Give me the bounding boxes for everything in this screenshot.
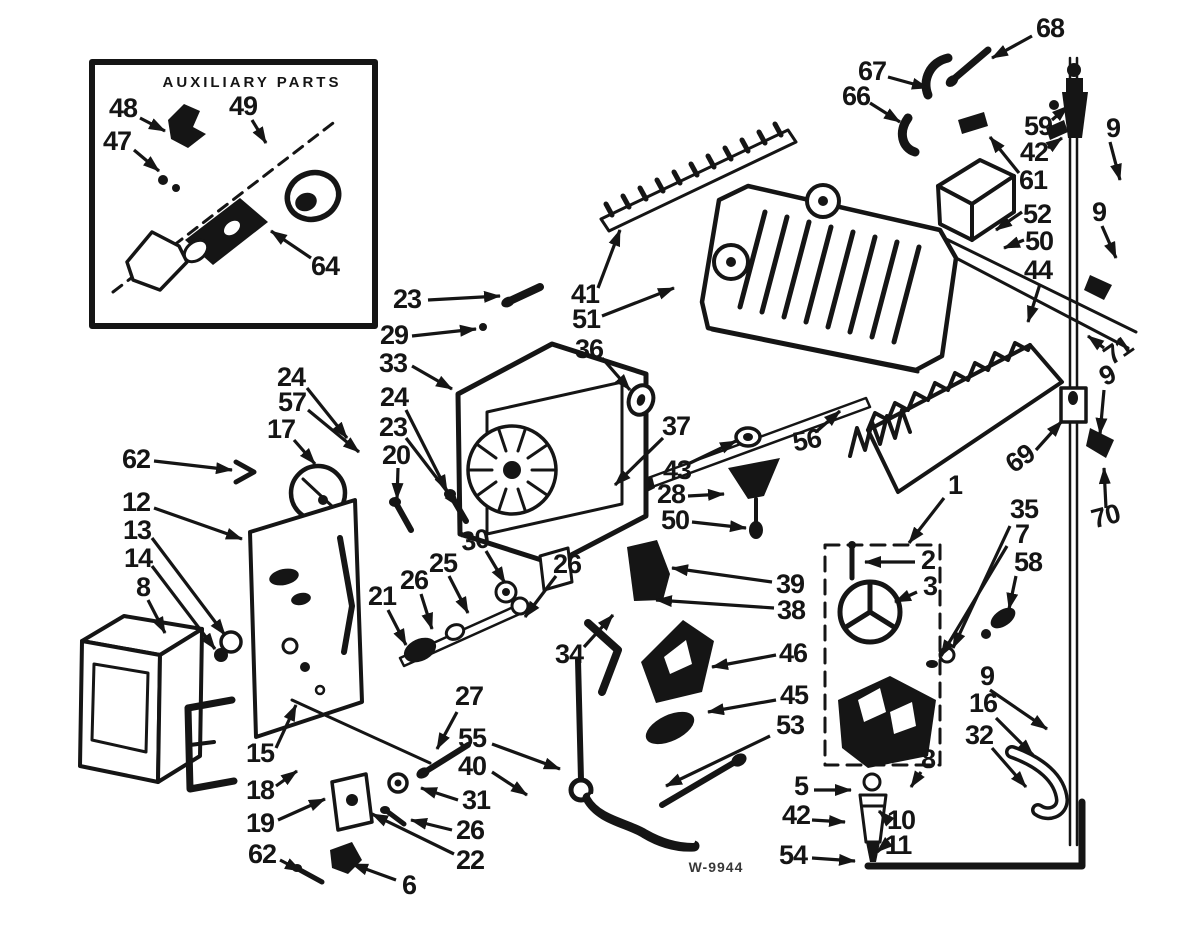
callout-46: 46 bbox=[779, 638, 808, 668]
part-shape bbox=[283, 639, 297, 653]
part-shape bbox=[1068, 391, 1078, 405]
leader-line bbox=[278, 799, 325, 820]
leader-line bbox=[271, 231, 311, 258]
part-shape bbox=[588, 623, 618, 692]
leader-line bbox=[812, 858, 855, 861]
callout-12: 12 bbox=[122, 487, 150, 517]
scanned-manual-page: 4847496423293341513624571724232062121314… bbox=[0, 0, 1200, 944]
callout-37: 37 bbox=[662, 411, 690, 441]
callout-42: 42 bbox=[1020, 137, 1048, 167]
part-shape bbox=[759, 132, 765, 143]
part-shape bbox=[318, 495, 328, 505]
leader-line bbox=[134, 150, 159, 171]
callout-22: 22 bbox=[456, 845, 484, 875]
callout-25: 25 bbox=[429, 548, 458, 578]
leader-line bbox=[406, 410, 447, 491]
callout-32: 32 bbox=[965, 720, 993, 750]
callout-6: 6 bbox=[402, 870, 417, 900]
leader-line bbox=[1009, 576, 1016, 609]
leader-line bbox=[708, 700, 776, 712]
part-shape bbox=[1067, 63, 1081, 77]
part-shape bbox=[300, 870, 322, 882]
callout-16: 16 bbox=[969, 688, 998, 718]
part-shape bbox=[640, 188, 646, 199]
part-shape bbox=[725, 148, 731, 159]
callout-45: 45 bbox=[780, 680, 809, 710]
callout-29: 29 bbox=[380, 320, 409, 350]
leader-line bbox=[308, 410, 359, 452]
leader-line bbox=[140, 118, 165, 131]
leader-line bbox=[276, 771, 297, 786]
callout-42: 42 bbox=[782, 800, 810, 830]
part-shape bbox=[728, 458, 780, 499]
callout-49: 49 bbox=[229, 91, 258, 121]
part-shape bbox=[346, 794, 358, 806]
callout-7: 7 bbox=[1015, 519, 1029, 549]
leader-line bbox=[397, 468, 398, 499]
leader-line bbox=[352, 864, 396, 880]
callout-1: 1 bbox=[948, 470, 963, 500]
leader-line bbox=[598, 230, 620, 288]
part-shape bbox=[657, 180, 663, 191]
leader-line bbox=[437, 712, 457, 749]
leader-line bbox=[1110, 142, 1120, 180]
leader-line bbox=[1036, 421, 1062, 450]
callout-66: 66 bbox=[842, 81, 871, 111]
part-shape bbox=[818, 196, 828, 206]
callout-27: 27 bbox=[455, 681, 483, 711]
leader-line bbox=[602, 288, 674, 316]
part-shape bbox=[627, 540, 670, 601]
leader-line bbox=[909, 498, 944, 543]
drawing-number: W-9944 bbox=[689, 859, 744, 875]
callout-18: 18 bbox=[246, 775, 275, 805]
part-shape bbox=[606, 204, 612, 215]
leader-line bbox=[421, 788, 458, 800]
part-shape bbox=[958, 112, 988, 134]
callout-61: 61 bbox=[1019, 165, 1048, 195]
leader-line bbox=[688, 494, 724, 496]
part-shape bbox=[330, 842, 362, 874]
part-shape bbox=[623, 196, 629, 207]
part-shape bbox=[641, 705, 699, 751]
part-shape bbox=[316, 686, 324, 694]
part-shape bbox=[926, 660, 938, 668]
part-shape bbox=[250, 500, 362, 737]
leader-line bbox=[656, 600, 774, 608]
leader-line bbox=[672, 568, 772, 582]
leader-line bbox=[992, 36, 1032, 58]
callout-50: 50 bbox=[1025, 226, 1053, 256]
callout-8: 8 bbox=[921, 744, 936, 774]
part-shape bbox=[158, 175, 168, 185]
leader-line bbox=[428, 296, 500, 300]
callout-52: 52 bbox=[1023, 199, 1051, 229]
leader-line bbox=[911, 772, 921, 787]
part-shape bbox=[691, 164, 697, 175]
callout-13: 13 bbox=[123, 515, 152, 545]
leader-line bbox=[941, 546, 1007, 656]
leader-line bbox=[152, 538, 225, 635]
part-shape bbox=[987, 603, 1019, 632]
leader-line bbox=[712, 655, 776, 667]
callout-9: 9 bbox=[1092, 197, 1107, 227]
leader-line bbox=[990, 690, 1047, 729]
leader-line bbox=[406, 438, 459, 507]
callout-8: 8 bbox=[136, 572, 151, 602]
part-shape bbox=[236, 462, 254, 482]
callout-38: 38 bbox=[777, 595, 806, 625]
exploded-parts-diagram: 4847496423293341513624571724232062121314… bbox=[0, 0, 1200, 944]
part-shape bbox=[395, 780, 402, 787]
leader-line bbox=[1028, 284, 1040, 322]
part-shape bbox=[1066, 78, 1083, 92]
callout-9: 9 bbox=[980, 661, 995, 691]
callout-62: 62 bbox=[122, 444, 150, 474]
leader-line bbox=[412, 329, 476, 336]
callout-62: 62 bbox=[248, 839, 276, 869]
leader-line bbox=[1100, 390, 1104, 434]
part-shape bbox=[926, 58, 948, 95]
part-shape bbox=[292, 700, 430, 763]
part-shape bbox=[902, 118, 915, 152]
part-shape bbox=[503, 461, 521, 479]
callout-50: 50 bbox=[661, 505, 689, 535]
callout-23: 23 bbox=[379, 412, 408, 442]
part-shape bbox=[1049, 100, 1059, 110]
part-shape bbox=[397, 505, 411, 530]
leader-line bbox=[1004, 240, 1024, 248]
callout-47: 47 bbox=[103, 126, 131, 156]
leader-line bbox=[492, 744, 560, 769]
part-shape bbox=[300, 662, 310, 672]
part-shape bbox=[955, 50, 988, 78]
inset-title: AUXILIARY PARTS bbox=[163, 74, 342, 91]
part-shape bbox=[860, 795, 886, 842]
leader-line bbox=[486, 551, 505, 583]
part-shape bbox=[172, 184, 180, 192]
leader-line bbox=[812, 820, 845, 822]
part-shape bbox=[479, 323, 487, 331]
callout-11: 11 bbox=[885, 830, 913, 860]
callout-20: 20 bbox=[382, 440, 410, 470]
callout-40: 40 bbox=[458, 751, 486, 781]
part-shape bbox=[380, 806, 390, 814]
leader-line bbox=[421, 594, 432, 629]
part-shape bbox=[674, 172, 680, 183]
callout-15: 15 bbox=[246, 738, 275, 768]
callout-26: 26 bbox=[553, 549, 582, 579]
callout-58: 58 bbox=[1014, 547, 1043, 577]
part-shape bbox=[1084, 275, 1112, 300]
part-shape bbox=[775, 124, 781, 135]
leader-line bbox=[666, 736, 770, 786]
leader-line bbox=[388, 610, 406, 645]
callout-33: 33 bbox=[379, 348, 408, 378]
part-shape bbox=[743, 433, 753, 441]
callout-26: 26 bbox=[456, 815, 485, 845]
callout-57: 57 bbox=[278, 387, 306, 417]
callout-34: 34 bbox=[555, 639, 584, 669]
callout-21: 21 bbox=[368, 581, 397, 611]
callout-31: 31 bbox=[462, 785, 491, 815]
callout-44: 44 bbox=[1024, 255, 1053, 285]
callout-14: 14 bbox=[124, 543, 153, 573]
callout-9: 9 bbox=[1106, 113, 1121, 143]
leader-line bbox=[692, 522, 746, 528]
callout-48: 48 bbox=[109, 93, 138, 123]
leader-line bbox=[252, 120, 266, 143]
part-shape bbox=[742, 140, 748, 151]
callout-51: 51 bbox=[572, 304, 601, 334]
part-shape bbox=[981, 629, 991, 639]
callout-19: 19 bbox=[246, 808, 275, 838]
callout-5: 5 bbox=[794, 771, 809, 801]
part-shape bbox=[214, 648, 228, 662]
leader-line bbox=[294, 440, 315, 464]
callout-30: 30 bbox=[459, 523, 491, 557]
leader-line bbox=[154, 508, 242, 539]
callout-70: 70 bbox=[1088, 498, 1123, 534]
callout-68: 68 bbox=[1036, 13, 1065, 43]
part-shape bbox=[848, 541, 856, 549]
callout-17: 17 bbox=[267, 414, 295, 444]
part-shape bbox=[864, 774, 880, 790]
part-shape bbox=[502, 588, 510, 596]
callout-64: 64 bbox=[311, 251, 340, 281]
part-shape bbox=[168, 104, 206, 148]
leader-line bbox=[492, 772, 527, 795]
callout-3: 3 bbox=[923, 571, 938, 601]
callout-55: 55 bbox=[458, 723, 487, 753]
leader-line bbox=[870, 103, 900, 122]
part-shape bbox=[512, 287, 540, 300]
leader-line bbox=[1102, 226, 1116, 258]
leader-line bbox=[525, 576, 556, 617]
callout-54: 54 bbox=[779, 840, 808, 870]
callout-53: 53 bbox=[776, 710, 805, 740]
leader-line bbox=[154, 461, 232, 470]
leader-line bbox=[449, 576, 468, 613]
callout-24: 24 bbox=[380, 382, 409, 412]
callout-69: 69 bbox=[1000, 438, 1041, 479]
callout-23: 23 bbox=[393, 284, 422, 314]
part-shape bbox=[726, 257, 736, 267]
callout-36: 36 bbox=[575, 334, 604, 364]
callout-26: 26 bbox=[400, 565, 429, 595]
part-shape bbox=[578, 660, 581, 780]
part-shape bbox=[512, 598, 528, 614]
leader-line bbox=[411, 820, 452, 830]
leader-line bbox=[412, 366, 452, 389]
part-shape bbox=[749, 521, 763, 539]
part-shape bbox=[708, 156, 714, 167]
part-shapes bbox=[80, 50, 1136, 882]
part-shape bbox=[389, 497, 401, 507]
